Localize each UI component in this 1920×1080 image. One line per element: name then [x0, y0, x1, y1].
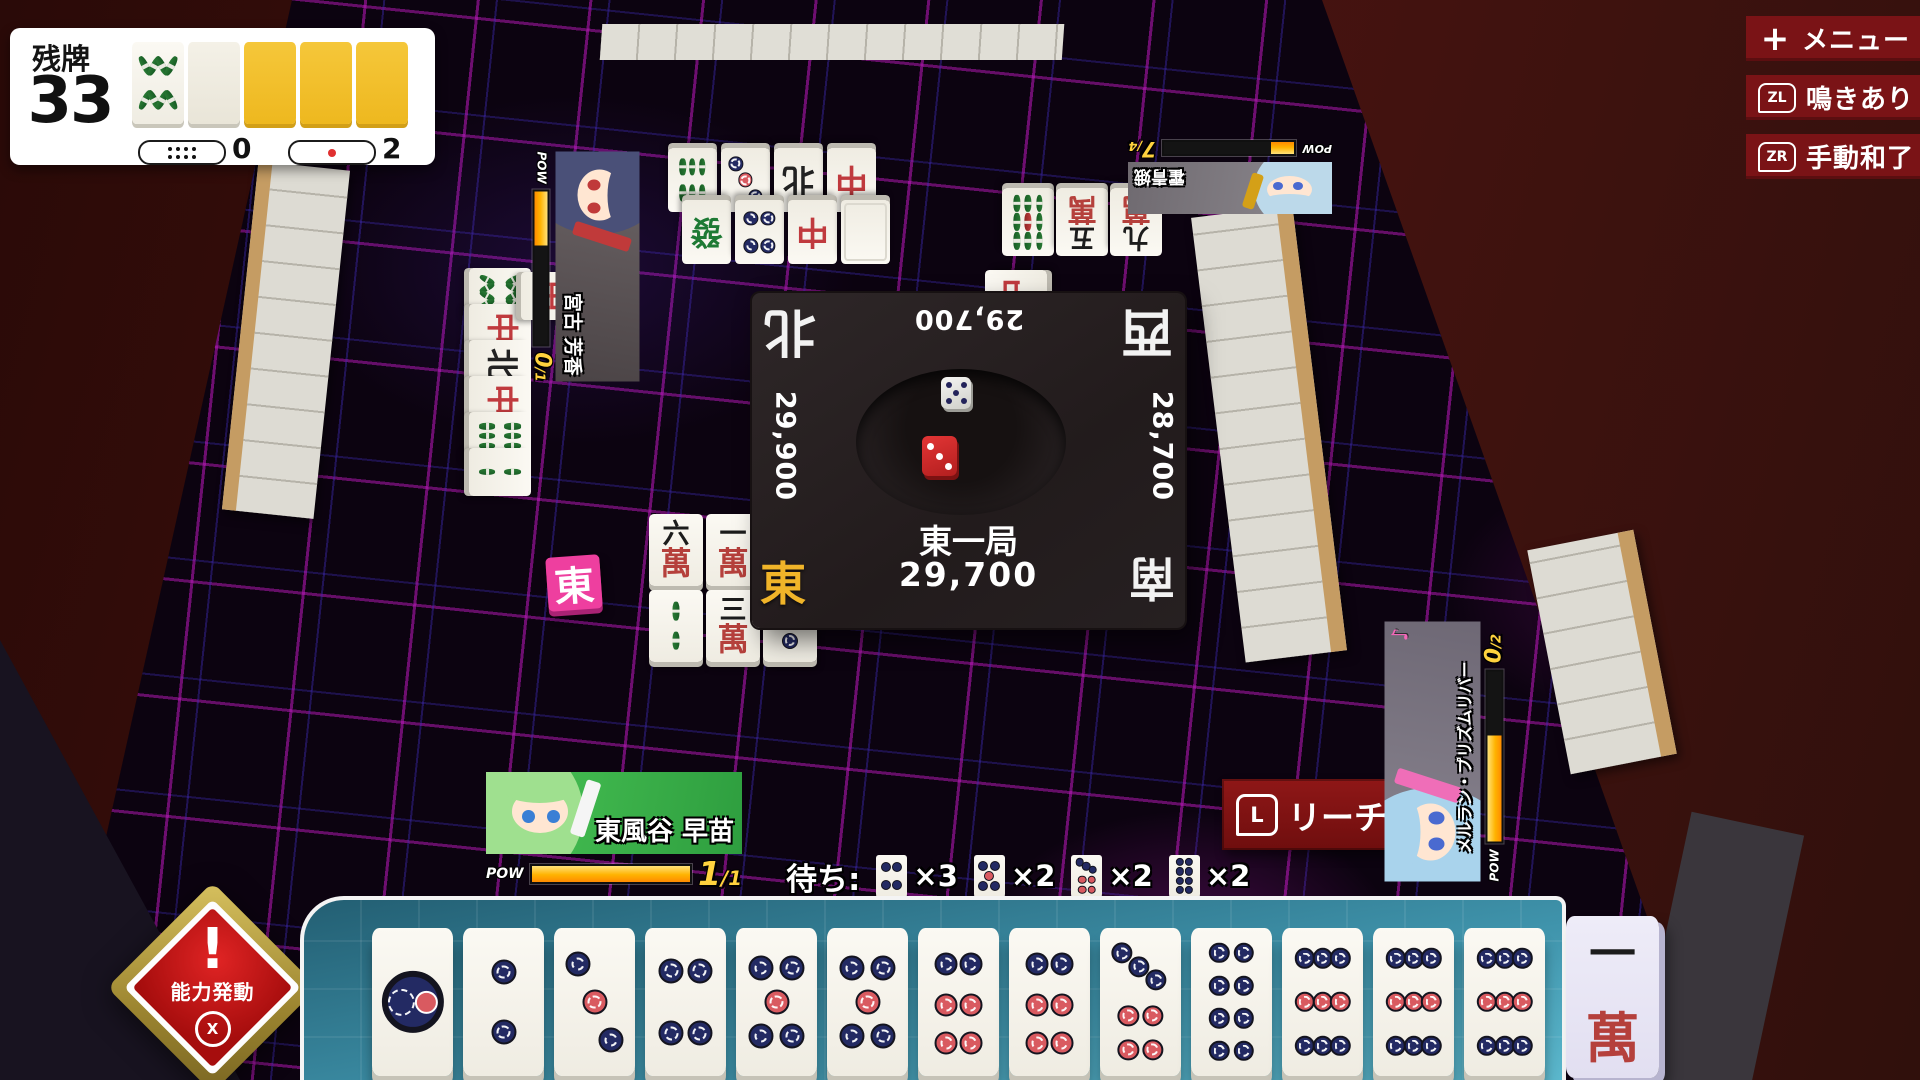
riichi-button[interactable]: L リーチ [1222, 779, 1401, 850]
mahjong-tile-back [244, 42, 296, 124]
mahjong-tile-2s [649, 590, 703, 662]
mahjong-tile-6p[interactable] [918, 928, 999, 1076]
mahjong-tile-4p[interactable] [645, 928, 726, 1076]
wind-label-north: 北 [764, 299, 816, 374]
mahjong-tile-8s [132, 42, 184, 124]
center-board: 北 西 東 南 29,700 29,900 28,700 東一局 29,700 [752, 293, 1185, 628]
menu-button[interactable]: + メニュー [1746, 16, 1920, 61]
pow-label-bottom: POW [486, 866, 524, 882]
mahjong-tile-白 [841, 200, 890, 264]
manual-win-button[interactable]: ZR 手動和了 [1746, 134, 1920, 179]
mahjong-tile-5m: 五萬 [1056, 188, 1108, 256]
wind-label-east: 東 [760, 548, 806, 614]
pow-bar-bottom [530, 864, 692, 884]
player-name-bottom: 東風谷 早苗 [595, 811, 734, 848]
mahjong-tile-9p[interactable] [1373, 928, 1454, 1076]
mahjong-tile-4p [876, 855, 907, 897]
wait-tile-8p [1169, 855, 1200, 897]
wall-counter-panel: 残牌 33 0 2 [10, 28, 435, 165]
pow-value-top: 7/4 [1128, 138, 1156, 159]
avatar-left: 宮古 芳香 [556, 152, 640, 382]
pow-label-right: POW [1488, 849, 1502, 881]
mahjong-tile-6p[interactable] [1009, 928, 1090, 1076]
music-note-icon: ♪ [1389, 628, 1414, 642]
thousand-stick-icon [288, 140, 376, 165]
score-top-player: 29,700 [913, 304, 1023, 335]
player-name-right: メルラン・プリズムリバー [1452, 662, 1476, 854]
mahjong-tile-5p[interactable] [827, 928, 908, 1076]
wait-tile-5p [974, 855, 1005, 897]
pow-value-bottom: 1/1 [698, 857, 742, 890]
pow-bar-left [533, 190, 550, 346]
avatar-bottom: 東風谷 早苗 [486, 772, 742, 854]
pow-label-top: POW [1302, 142, 1332, 155]
avatar-right: ♪ メルラン・プリズムリバー [1385, 622, 1481, 882]
mahjong-tile-9s [1002, 188, 1054, 256]
wind-label-south: 南 [1129, 548, 1175, 614]
menu-button-label: メニュー [1802, 20, 1910, 57]
mahjong-tile-9p[interactable] [1464, 928, 1545, 1076]
riichi-button-label: リーチ [1288, 791, 1387, 839]
avatar-top: 霍青娥 [1128, 162, 1332, 214]
manual-win-label: 手動和了 [1806, 138, 1914, 175]
mahjong-tile-5p[interactable] [736, 928, 817, 1076]
wait-count: ×2 [1011, 859, 1055, 893]
exclamation-icon: ! [200, 928, 226, 973]
mahjong-tile-5p [974, 855, 1005, 897]
mahjong-tile-6m: 六萬 [649, 514, 703, 586]
mahjong-tile-1p[interactable] [372, 928, 453, 1076]
hundred-stick-count: 0 [232, 132, 251, 165]
white-die [941, 377, 971, 409]
mahjong-tile-8p[interactable] [1191, 928, 1272, 1076]
player-name-left: 宮古 芳香 [561, 293, 588, 376]
mahjong-tile-3p[interactable] [554, 928, 635, 1076]
mahjong-tile-9p[interactable] [1282, 928, 1363, 1076]
score-right-player: 28,700 [1147, 391, 1178, 501]
mahjong-tile-7p [1071, 855, 1102, 897]
l-button-icon: L [1236, 794, 1278, 836]
pow-label-left: POW [535, 152, 549, 184]
wait-count: ×2 [1206, 859, 1250, 893]
mahjong-tile-back [356, 42, 408, 124]
zl-button-icon: ZL [1758, 83, 1796, 113]
waiting-tiles-row: 待ち: ×3×2×2×2 [786, 852, 1250, 900]
pow-bar-top [1162, 141, 1296, 157]
x-button-icon: X [195, 1011, 231, 1047]
waits-label: 待ち: [786, 854, 860, 899]
mahjong-tile-發: 發 [682, 200, 731, 264]
pow-value-left: 0/1 [531, 352, 553, 381]
remaining-tiles-count: 33 [20, 64, 120, 138]
player-panel-top: 霍青娥 POW 7/4 [1128, 138, 1332, 214]
player-panel-left: 宮古 芳香 POW 0/1 [531, 152, 640, 382]
ability-button-label: 能力発動 [171, 976, 255, 1005]
mahjong-tile-8p [1169, 855, 1200, 897]
wait-tile-4p [876, 855, 907, 897]
mahjong-tile-2s [469, 448, 531, 496]
wait-tile-7p [1071, 855, 1102, 897]
plus-button-icon: + [1758, 22, 1792, 56]
dealer-marker: 東 [545, 554, 603, 612]
wind-label-west: 西 [1121, 299, 1173, 374]
ability-activate-button[interactable]: ! 能力発動 X [120, 895, 305, 1080]
game-screen: 北中發中五萬九萬六萬一萬八萬八萬三萬中北中中中發北南西九萬南 北 西 東 南 2… [0, 0, 1920, 1080]
zr-button-icon: ZR [1758, 142, 1796, 172]
tile-wall-top [598, 24, 1065, 90]
mahjong-tile-7p[interactable] [1100, 928, 1181, 1076]
wait-count: ×2 [1108, 859, 1152, 893]
mahjong-tile-2p[interactable] [463, 928, 544, 1076]
thousand-stick-count: 2 [382, 132, 401, 165]
hundred-stick-icon [138, 140, 226, 165]
player-panel-bottom: 東風谷 早苗 POW 1/1 [486, 772, 742, 890]
player-name-top: 霍青娥 [1134, 166, 1185, 191]
calls-toggle-label: 鳴きあり [1806, 79, 1914, 116]
mahjong-tile-blank [188, 42, 240, 124]
score-left-player: 29,900 [770, 391, 801, 501]
drawn-tile-1m[interactable]: 一萬 [1566, 916, 1659, 1078]
mahjong-tile-4p [735, 200, 784, 264]
mahjong-tile-中: 中 [788, 200, 837, 264]
mahjong-tile-back [300, 42, 352, 124]
red-die [922, 436, 957, 476]
pow-bar-right [1486, 669, 1504, 843]
wait-count: ×3 [913, 859, 957, 893]
pow-value-right: 0/2 [1484, 634, 1506, 663]
player-panel-right: ♪ メルラン・プリズムリバー POW 0/2 [1385, 622, 1506, 882]
score-self: 29,700 [899, 555, 1038, 594]
calls-toggle-button[interactable]: ZL 鳴きあり [1746, 75, 1920, 120]
